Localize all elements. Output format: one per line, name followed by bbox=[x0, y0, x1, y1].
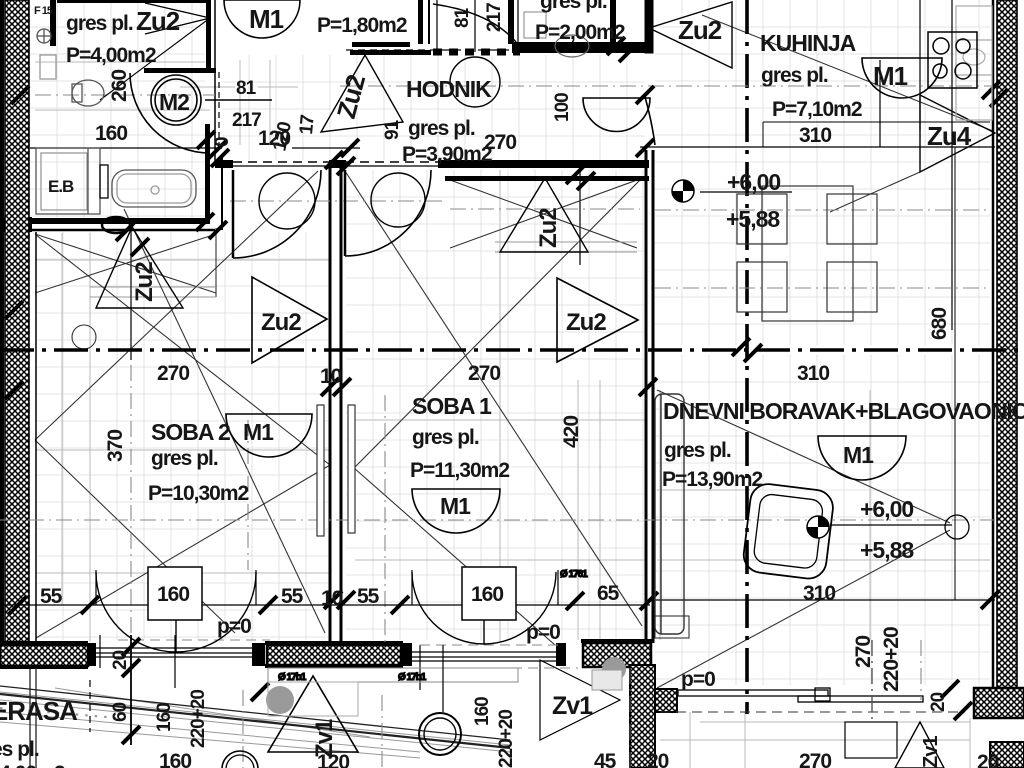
svg-text:91: 91 bbox=[382, 119, 403, 140]
svg-text:55: 55 bbox=[281, 585, 304, 608]
svg-text:P=3,90m2: P=3,90m2 bbox=[402, 143, 492, 166]
svg-text:60: 60 bbox=[110, 702, 131, 722]
svg-text:gres pl.: gres pl. bbox=[408, 117, 475, 140]
svg-text:270: 270 bbox=[157, 362, 189, 385]
svg-text:270: 270 bbox=[852, 636, 875, 668]
svg-text:SOBA 1: SOBA 1 bbox=[412, 393, 492, 419]
svg-text:Zv1: Zv1 bbox=[311, 719, 338, 758]
svg-text:10: 10 bbox=[320, 365, 342, 388]
svg-text:680: 680 bbox=[928, 308, 951, 340]
svg-text:Zu2: Zu2 bbox=[261, 309, 301, 336]
svg-text:p=0: p=0 bbox=[217, 615, 251, 638]
svg-text:M1: M1 bbox=[843, 442, 874, 468]
svg-text:P=10,30m2: P=10,30m2 bbox=[148, 482, 248, 505]
svg-text:+5,88: +5,88 bbox=[726, 206, 780, 232]
svg-text:P=4,00m2: P=4,00m2 bbox=[66, 44, 156, 67]
svg-text:P=2,00m2: P=2,00m2 bbox=[535, 21, 625, 44]
svg-text:55: 55 bbox=[357, 585, 380, 608]
svg-text:KUHINJA: KUHINJA bbox=[760, 30, 856, 56]
svg-text:Ø 17b1: Ø 17b1 bbox=[278, 672, 307, 683]
svg-text:100: 100 bbox=[552, 93, 573, 122]
svg-text:M2: M2 bbox=[159, 89, 189, 115]
svg-text:Zu2: Zu2 bbox=[566, 309, 606, 336]
svg-text:Zv1: Zv1 bbox=[552, 692, 593, 720]
svg-text:M1: M1 bbox=[249, 4, 284, 34]
svg-text:45: 45 bbox=[594, 750, 617, 768]
svg-text:310: 310 bbox=[797, 362, 829, 385]
svg-text:20: 20 bbox=[928, 692, 949, 712]
svg-text:160: 160 bbox=[157, 583, 189, 606]
svg-text:gres pl.: gres pl. bbox=[66, 12, 133, 35]
svg-text:217: 217 bbox=[232, 110, 261, 131]
svg-text:P=4,00m2: P=4,00m2 bbox=[0, 762, 65, 768]
svg-text:gres pl.: gres pl. bbox=[151, 447, 218, 470]
svg-text:E.B: E.B bbox=[48, 177, 74, 196]
svg-text:160: 160 bbox=[472, 697, 493, 726]
svg-text:+6,00: +6,00 bbox=[727, 169, 780, 195]
svg-text:SOBA 2: SOBA 2 bbox=[151, 419, 230, 445]
svg-text:+6,00: +6,00 bbox=[860, 496, 913, 522]
svg-text:gres pl.: gres pl. bbox=[540, 0, 607, 13]
svg-text:DNEVNI BORAVAK+BLAGOVAONICA: DNEVNI BORAVAK+BLAGOVAONICA bbox=[663, 398, 1024, 424]
svg-text:310: 310 bbox=[799, 124, 831, 147]
svg-text:Ø 1761: Ø 1761 bbox=[560, 569, 588, 580]
svg-text:81: 81 bbox=[236, 78, 257, 99]
svg-text:81: 81 bbox=[452, 7, 473, 28]
svg-text:Zu2: Zu2 bbox=[535, 208, 562, 248]
svg-text:310: 310 bbox=[803, 582, 835, 605]
svg-text:270: 270 bbox=[799, 750, 831, 768]
svg-text:217: 217 bbox=[484, 3, 505, 32]
svg-text:160: 160 bbox=[471, 583, 503, 606]
svg-text:Zu2: Zu2 bbox=[136, 6, 180, 36]
svg-text:55: 55 bbox=[40, 585, 63, 608]
svg-text:M1: M1 bbox=[440, 493, 471, 519]
svg-text:gres pl.: gres pl. bbox=[664, 439, 731, 462]
svg-text:Zu4: Zu4 bbox=[927, 121, 972, 151]
svg-text:P=1,80m2: P=1,80m2 bbox=[317, 14, 407, 37]
svg-text:0: 0 bbox=[212, 137, 233, 147]
svg-text:20: 20 bbox=[647, 750, 669, 768]
svg-text:M1: M1 bbox=[243, 419, 274, 445]
svg-text:Zu2: Zu2 bbox=[678, 15, 722, 45]
svg-text:270: 270 bbox=[484, 131, 516, 154]
svg-text:20: 20 bbox=[977, 751, 999, 768]
svg-text:220+20: 220+20 bbox=[496, 710, 517, 768]
svg-text:160: 160 bbox=[154, 703, 175, 732]
svg-text:F 15: F 15 bbox=[34, 5, 53, 17]
svg-text:HODNIK: HODNIK bbox=[406, 76, 492, 102]
svg-text:gres pl.: gres pl. bbox=[412, 426, 479, 449]
svg-text:+5,88: +5,88 bbox=[860, 537, 914, 563]
svg-text:TERASA: TERASA bbox=[0, 696, 78, 726]
svg-text:gres pl.: gres pl. bbox=[0, 738, 39, 761]
svg-text:M1: M1 bbox=[873, 61, 908, 91]
svg-text:10: 10 bbox=[321, 587, 343, 610]
svg-text:Zv1: Zv1 bbox=[920, 736, 942, 768]
svg-text:p=0: p=0 bbox=[681, 668, 715, 691]
svg-text:260: 260 bbox=[108, 70, 131, 102]
svg-text:Zu2: Zu2 bbox=[131, 262, 158, 302]
svg-text:65: 65 bbox=[597, 582, 620, 605]
svg-text:420: 420 bbox=[560, 416, 583, 448]
svg-text:160: 160 bbox=[159, 750, 191, 768]
svg-text:220+20: 220+20 bbox=[188, 690, 209, 748]
svg-text:370: 370 bbox=[104, 430, 127, 462]
svg-text:P=13,90m2: P=13,90m2 bbox=[662, 468, 762, 491]
svg-text:17: 17 bbox=[296, 114, 319, 135]
svg-text:P=7,10m2: P=7,10m2 bbox=[772, 98, 862, 121]
svg-text:gres pl.: gres pl. bbox=[761, 64, 828, 87]
svg-text:P=11,30m2: P=11,30m2 bbox=[410, 459, 509, 482]
svg-text:220+20: 220+20 bbox=[880, 627, 903, 692]
svg-text:270: 270 bbox=[468, 362, 500, 385]
svg-text:20: 20 bbox=[110, 650, 131, 670]
svg-text:p=0: p=0 bbox=[526, 621, 560, 644]
svg-text:Ø 17b1: Ø 17b1 bbox=[398, 672, 427, 683]
svg-text:160: 160 bbox=[95, 122, 127, 145]
